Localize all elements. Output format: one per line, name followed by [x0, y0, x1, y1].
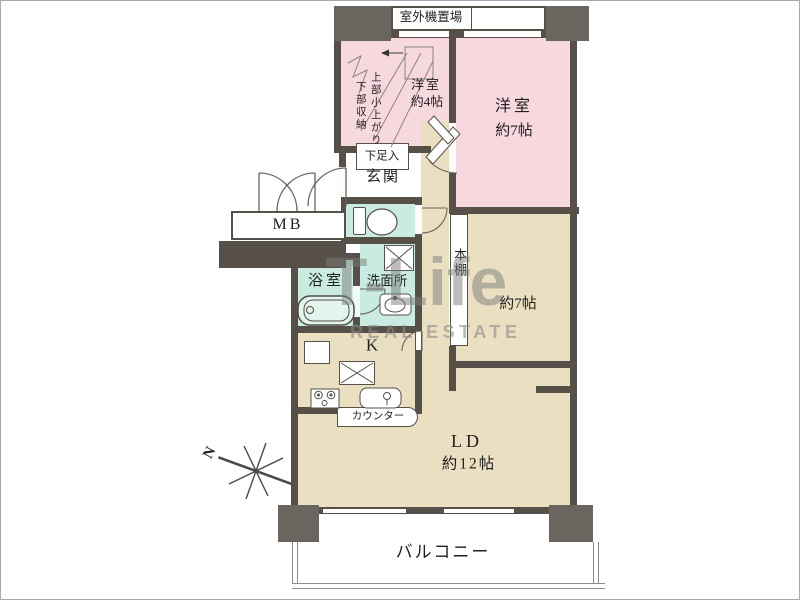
balcony-rail	[292, 583, 605, 589]
window	[399, 30, 451, 38]
north-label: N	[200, 444, 220, 461]
wall	[339, 153, 346, 168]
watermark-subtitle: REAL ESTATE	[350, 322, 522, 343]
door-opening	[449, 123, 456, 173]
balcony-label: バルコニー	[396, 544, 491, 563]
wall	[536, 386, 571, 393]
western7-size-label: 約7帖	[495, 123, 533, 140]
living-size-label: 約12帖	[442, 455, 497, 472]
pillar	[546, 6, 589, 41]
pillar	[549, 505, 593, 542]
wall	[449, 346, 456, 391]
window	[444, 508, 514, 514]
washer-space-box	[304, 341, 330, 364]
wall	[449, 361, 571, 368]
toilet-tank	[353, 207, 366, 235]
floorplan-image: 室外機置場 洋室 約4帖 上部小上がり 下部収納 洋室 約7帖 下足入 玄関 M…	[0, 0, 800, 600]
refrigerator-space-box	[339, 361, 375, 385]
window	[323, 508, 406, 514]
living-label: LD	[451, 432, 483, 452]
outdoor-unit-label: 室外機置場	[400, 11, 463, 25]
balcony-rail	[292, 542, 298, 589]
divider	[471, 8, 472, 29]
meter-box-door-arcs	[259, 173, 315, 211]
balcony-rail	[593, 542, 599, 589]
western4-size-label: 約4帖	[411, 95, 444, 109]
wall	[415, 351, 422, 414]
compass-rose	[218, 443, 293, 499]
shoe-cabinet-label: 下足入	[365, 151, 400, 164]
watermark-logo: T-Life	[326, 243, 507, 321]
wall	[449, 31, 456, 123]
door-opening	[338, 167, 347, 198]
wall	[341, 197, 422, 204]
counter-label: カウンター	[352, 411, 405, 423]
pillar	[334, 6, 391, 41]
wall	[291, 253, 298, 513]
entrance-label: 玄関	[366, 169, 400, 186]
wall	[298, 407, 339, 414]
western4-label: 洋室	[411, 78, 441, 92]
storage-note-label-1: 上部小上がり	[369, 72, 381, 147]
meter-box-label: MB	[273, 216, 304, 234]
door-opening	[415, 205, 422, 234]
wall	[570, 31, 577, 513]
wall	[334, 31, 341, 153]
storage-note-label-2: 下部収納	[354, 81, 366, 131]
wall	[449, 207, 579, 214]
western7-label: 洋室	[495, 98, 533, 116]
window	[464, 30, 541, 38]
pillar	[278, 505, 319, 542]
